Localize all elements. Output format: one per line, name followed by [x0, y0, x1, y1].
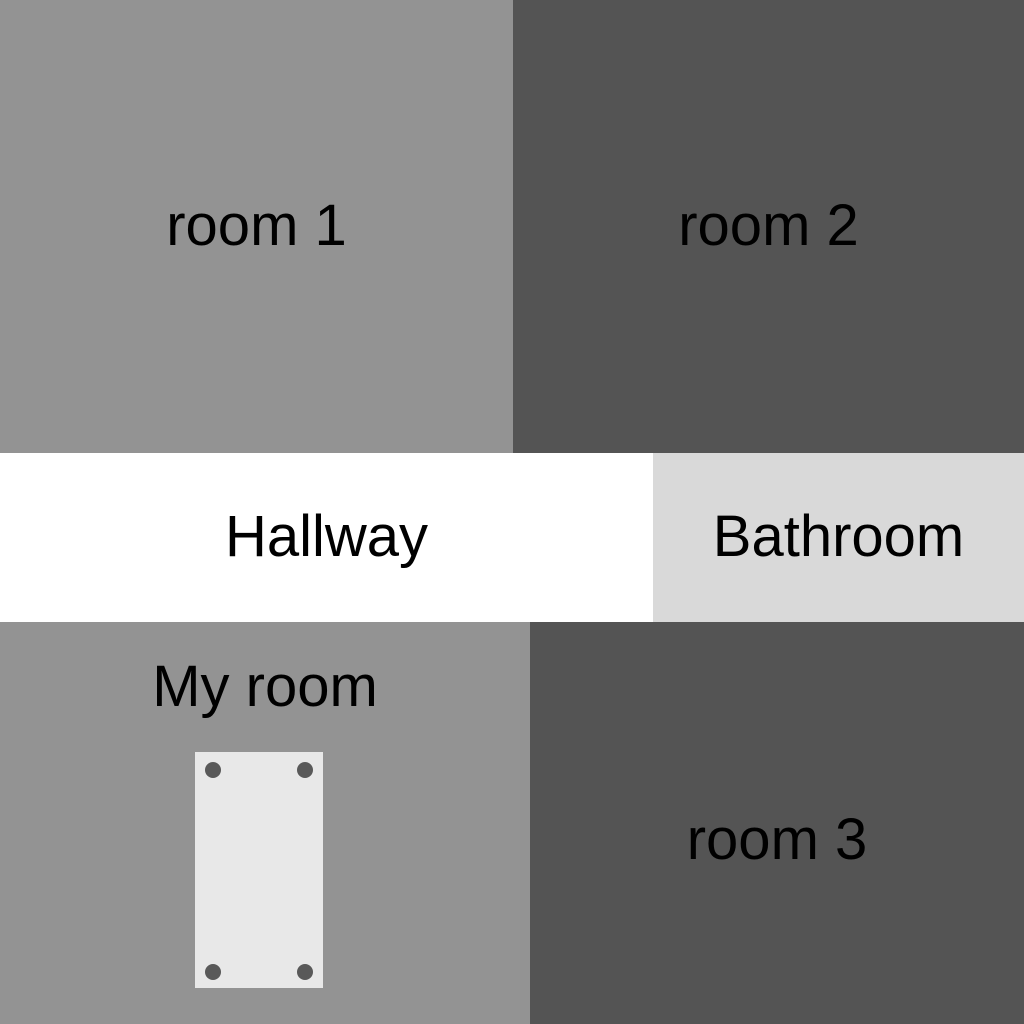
my-room-area: My room [0, 622, 530, 1024]
bed-post-dot [297, 762, 313, 778]
my-room-label: My room [0, 648, 530, 727]
room-1-label: room 1 [166, 187, 347, 266]
bed [195, 752, 323, 988]
room-1-area: room 1 [0, 0, 513, 453]
bathroom-area: Bathroom [653, 453, 1024, 622]
room-2-label: room 2 [678, 187, 859, 266]
room-3-area: room 3 [530, 622, 1024, 1024]
room-3-label: room 3 [687, 801, 868, 880]
hallway-label: Hallway [225, 498, 428, 577]
bed-post-dot [205, 762, 221, 778]
bed-post-dot [205, 964, 221, 980]
bathroom-label: Bathroom [713, 498, 964, 577]
bed-post-dot [297, 964, 313, 980]
room-2-area: room 2 [513, 0, 1024, 453]
hallway-area: Hallway [0, 453, 653, 622]
floor-plan: room 1 room 2 Hallway Bathroom My room r… [0, 0, 1024, 1024]
